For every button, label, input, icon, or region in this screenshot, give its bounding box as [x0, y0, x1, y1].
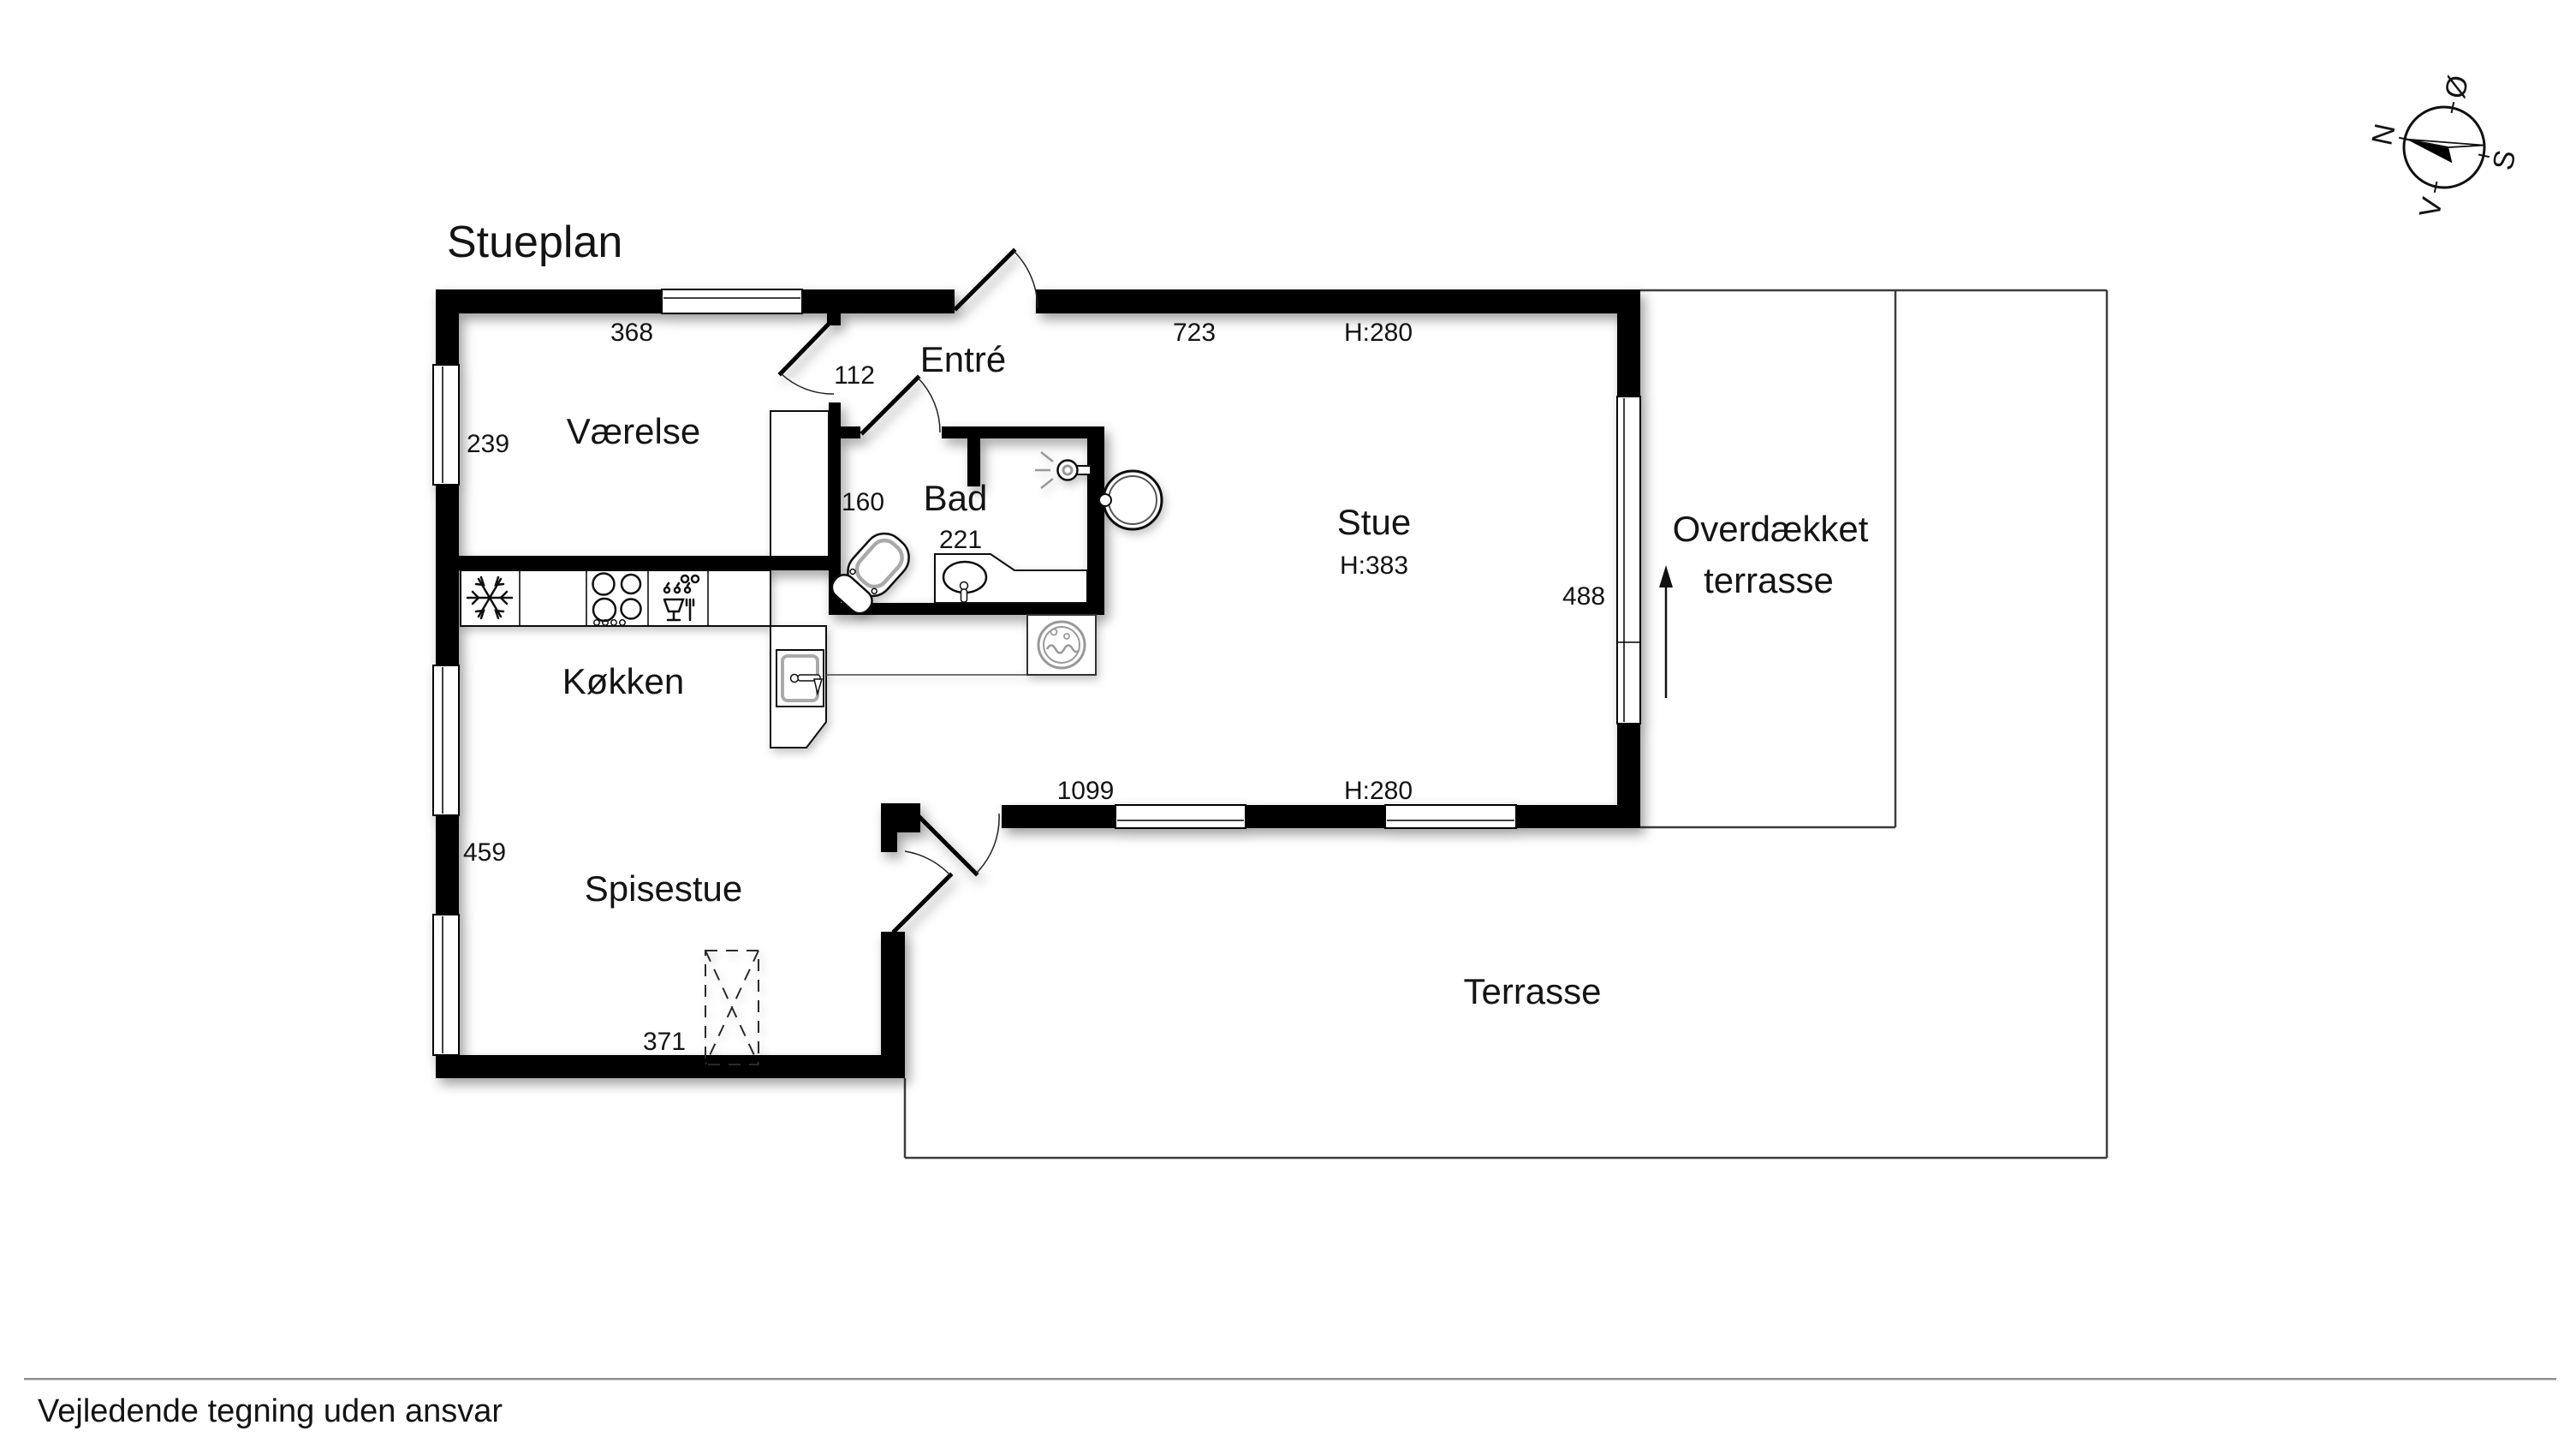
fixtures [461, 411, 1162, 1064]
room-label-koekken: Køkken [562, 661, 684, 701]
compass-east: Ø [2439, 73, 2476, 102]
glass-door-stue-east [1617, 397, 1640, 724]
dim-stue-door-width: 488 [1562, 582, 1605, 611]
dim-entre-passage: 112 [834, 361, 875, 390]
room-label-covered-terrace-2: terrasse [1704, 560, 1834, 600]
dim-spisestue-depth: 459 [463, 838, 506, 867]
dim-vaerelse-width: 368 [610, 319, 653, 347]
compass-south: S [2486, 147, 2522, 173]
room-label-covered-terrace-1: Overdækket [1673, 509, 1869, 549]
dim-stue-bottom-height: H:280 [1344, 777, 1413, 805]
mirror-icon [1099, 471, 1162, 529]
terrace-arrow-icon [1659, 565, 1673, 698]
room-label-entre: Entré [920, 339, 1006, 379]
window-top-vaerelse [662, 289, 802, 313]
washing-machine-icon [1027, 615, 1096, 675]
dim-bad-left: 160 [842, 488, 884, 516]
dashed-furniture-box [705, 951, 759, 1064]
compass-north: N [2365, 121, 2401, 148]
floorplan-canvas: N Ø S V Stueplan Værelse Entré Bad Stue … [0, 0, 2576, 1449]
room-label-bad: Bad [924, 478, 988, 518]
window-left-spisestue [433, 915, 459, 1055]
kitchen-peninsula [770, 626, 826, 748]
page-title: Stueplan [447, 218, 622, 267]
terrace-door-leaf-a [920, 818, 976, 874]
footer-divider [24, 1378, 2556, 1380]
dim-stue-bottom-width: 1099 [1057, 777, 1115, 805]
room-label-stue: Stue [1337, 502, 1411, 542]
compass-west: V [2413, 194, 2449, 220]
dim-vaerelse-depth: 239 [467, 430, 509, 458]
terrace-outline [905, 290, 2107, 1158]
window-stue-bottom-right [1385, 805, 1516, 828]
compass-rose: N Ø S V [2353, 60, 2536, 234]
room-label-vaerelse: Værelse [567, 411, 700, 451]
footer: Vejledende tegning uden ansvar [24, 1378, 2556, 1429]
shower-icon [1035, 452, 1091, 488]
labels: Stueplan Værelse Entré Bad Stue Køkken S… [447, 218, 1869, 1056]
room-label-spisestue: Spisestue [585, 868, 742, 909]
window-stue-bottom-left [1115, 805, 1246, 828]
room-label-terrace: Terrasse [1463, 971, 1601, 1011]
dim-bad-width: 221 [939, 526, 982, 554]
terrace-door-leaf-b [895, 875, 950, 931]
bath-sink [935, 554, 1087, 603]
dim-spisestue-width: 371 [643, 1028, 686, 1056]
front-door-leaf [956, 251, 1014, 308]
wardrobe [770, 411, 829, 557]
dim-stue-ceiling: H:383 [1340, 552, 1408, 580]
dim-stue-top-width: 723 [1173, 319, 1216, 347]
footer-disclaimer: Vejledende tegning uden ansvar [38, 1393, 503, 1429]
dim-stue-top-height: H:280 [1344, 319, 1413, 347]
window-left-vaerelse [433, 365, 459, 485]
vaerelse-door-leaf [781, 319, 834, 373]
window-left-koekken [433, 665, 459, 815]
